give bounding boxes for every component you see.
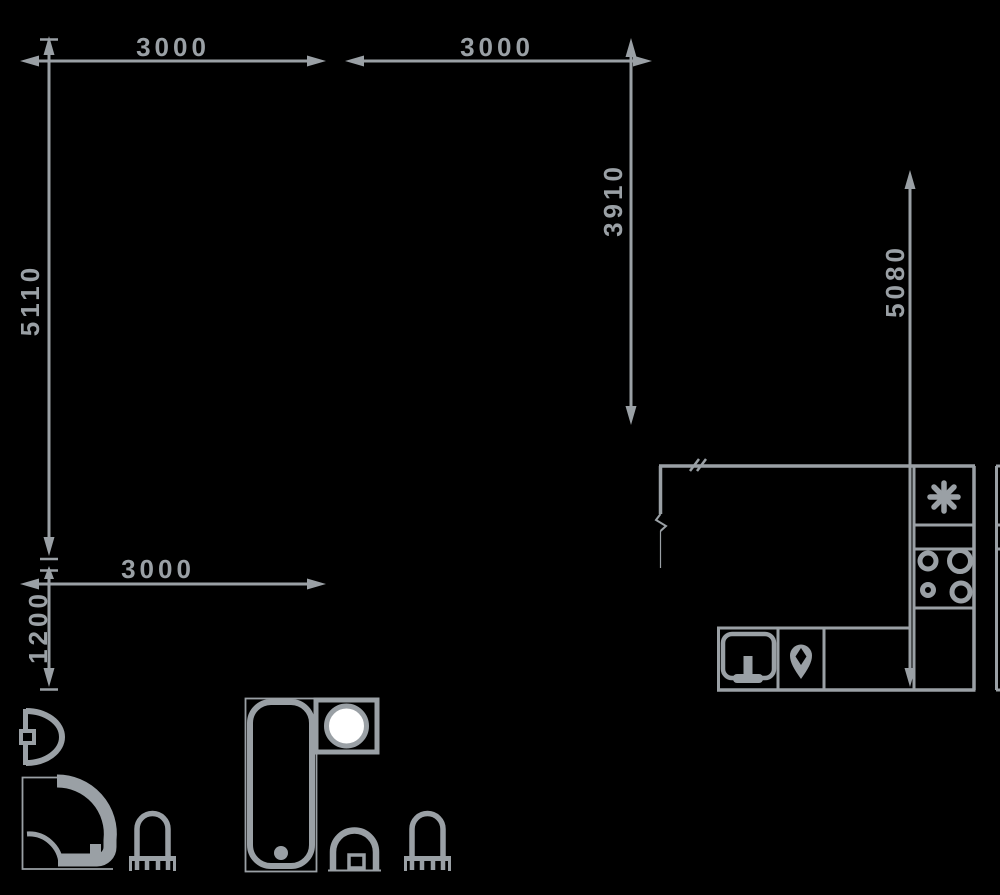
bathtub-drain [274, 846, 288, 860]
arrow-down-icon [626, 406, 637, 425]
floor-plan-drawing: 3000 3000 5110 3910 5080 [0, 0, 1000, 895]
break-zigzag-icon [656, 514, 666, 531]
dim-middle-height: 3910 [598, 38, 637, 425]
bathtub-outline [246, 699, 317, 872]
toilet-icon [404, 814, 451, 872]
dim-top-middle-width: 3000 [345, 32, 652, 67]
arrow-up-icon [905, 170, 916, 189]
burner [952, 583, 970, 601]
drain-box [349, 855, 364, 868]
faucet-base [733, 674, 763, 683]
dim-label-right-height: 5080 [880, 244, 910, 318]
corner-shower-icon [23, 778, 114, 870]
arrow-up-icon [44, 566, 54, 579]
dim-right-height: 5080 [880, 170, 916, 687]
kitchen-sink-icon [723, 634, 774, 683]
tap [21, 731, 34, 743]
toilet-icon [129, 814, 176, 872]
bathtub-rim [250, 702, 312, 866]
bathtub-icon [246, 699, 317, 872]
toilet-bowl [137, 814, 168, 857]
dim-label-lower-height: 1200 [23, 590, 53, 664]
arrow-left-icon [345, 56, 364, 67]
dim-label-lower-width: 3000 [121, 554, 195, 584]
burner [950, 551, 971, 572]
cooktop-icon [920, 551, 971, 602]
floor-plan: 3000 3000 5110 3910 5080 [0, 0, 1000, 895]
dim-label-middle-height: 3910 [598, 163, 628, 237]
water-drop-pin-icon [790, 645, 812, 680]
toilet-bowl [412, 814, 443, 857]
arrow-down-icon [44, 668, 55, 687]
right-wall-strip [996, 466, 1000, 690]
dim-label-top-left-width: 3000 [136, 32, 210, 62]
dim-lower-width: 3000 [20, 554, 326, 590]
arrow-left-icon [20, 56, 39, 67]
dim-label-left-height: 5110 [15, 264, 45, 336]
shower-door [27, 834, 61, 864]
arrow-up-icon [626, 38, 637, 57]
arrow-right-icon [307, 56, 326, 67]
arrow-left-icon [20, 579, 39, 590]
shower-glass [57, 781, 110, 860]
fridge-snowflake-icon [930, 483, 958, 511]
arrow-right-icon [633, 56, 652, 67]
hand-basin-icon [328, 831, 381, 871]
dim-left-height: 5110 [15, 36, 58, 559]
kitchen-counter [656, 459, 1000, 690]
arrow-down-icon [44, 537, 55, 556]
wash-basin-icon [21, 709, 62, 765]
arrow-right-icon [307, 579, 326, 590]
washer-drum [327, 706, 367, 746]
burner [923, 585, 934, 596]
dim-label-top-middle-width: 3000 [460, 32, 534, 62]
dim-top-left-width: 3000 [20, 32, 326, 67]
shower-handle [90, 844, 101, 855]
washing-machine-icon [316, 700, 377, 752]
burner [920, 553, 936, 569]
